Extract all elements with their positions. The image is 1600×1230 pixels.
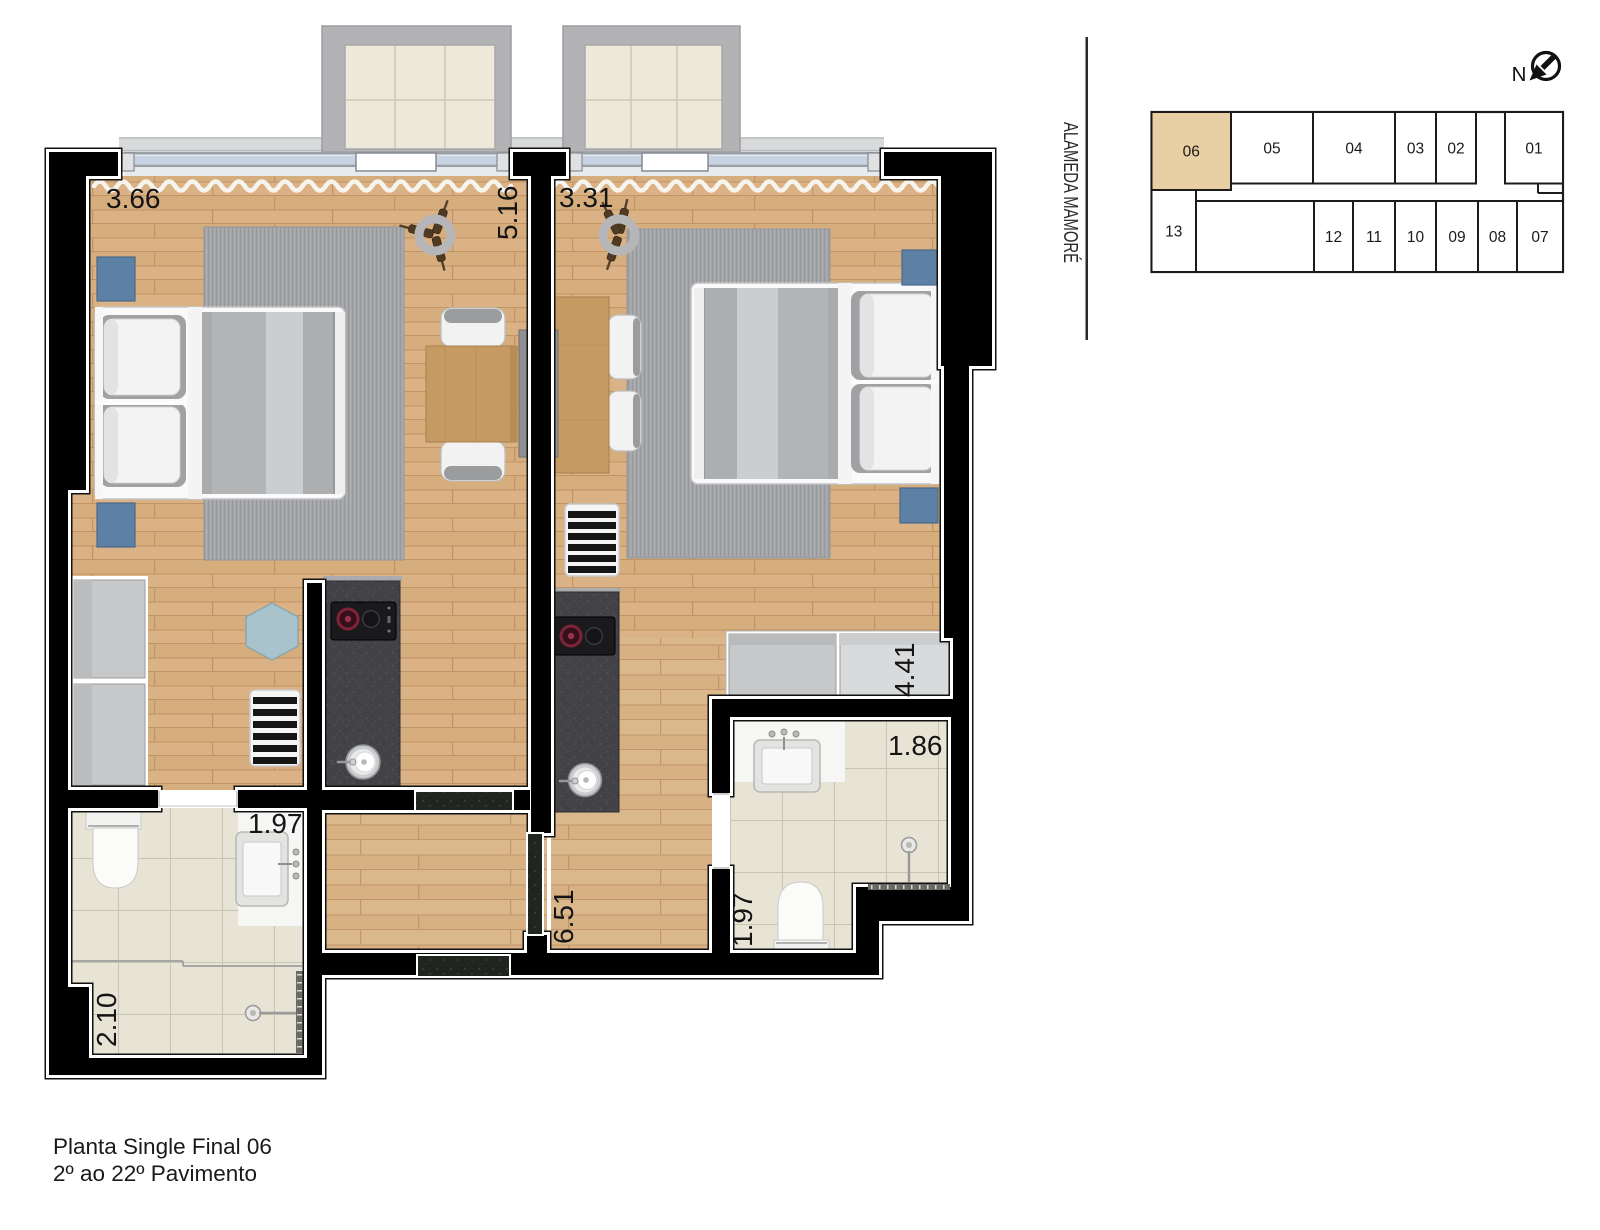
svg-text:05: 05 <box>1263 140 1280 157</box>
svg-text:07: 07 <box>1531 229 1548 246</box>
svg-text:1.97: 1.97 <box>727 893 758 948</box>
svg-text:4.41: 4.41 <box>889 643 920 698</box>
svg-text:3.66: 3.66 <box>106 183 161 214</box>
svg-text:08: 08 <box>1489 229 1506 246</box>
svg-text:04: 04 <box>1345 140 1363 157</box>
svg-text:N: N <box>1512 63 1527 86</box>
svg-text:c: c <box>330 757 335 767</box>
svg-text:11: 11 <box>1366 229 1382 246</box>
svg-text:10: 10 <box>1407 229 1425 246</box>
svg-text:13: 13 <box>1165 224 1182 241</box>
svg-text:2.10: 2.10 <box>91 993 122 1048</box>
svg-text:2º ao 22º Pavimento: 2º ao 22º Pavimento <box>53 1161 257 1186</box>
svg-text:01: 01 <box>1525 140 1542 157</box>
svg-text:06: 06 <box>1183 144 1200 161</box>
svg-text:5.16: 5.16 <box>492 186 523 241</box>
svg-text:3.31: 3.31 <box>559 182 614 213</box>
svg-text:12: 12 <box>1325 229 1342 246</box>
svg-text:6.51: 6.51 <box>548 890 579 945</box>
svg-text:02: 02 <box>1447 140 1464 157</box>
svg-text:1.97: 1.97 <box>248 808 303 839</box>
svg-text:03: 03 <box>1407 140 1424 157</box>
svg-text:ALAMEDA MAMORÉ: ALAMEDA MAMORÉ <box>1059 122 1082 263</box>
svg-text:1.86: 1.86 <box>888 730 943 761</box>
svg-text:Planta Single Final 06: Planta Single Final 06 <box>53 1134 272 1159</box>
svg-text:09: 09 <box>1448 229 1465 246</box>
